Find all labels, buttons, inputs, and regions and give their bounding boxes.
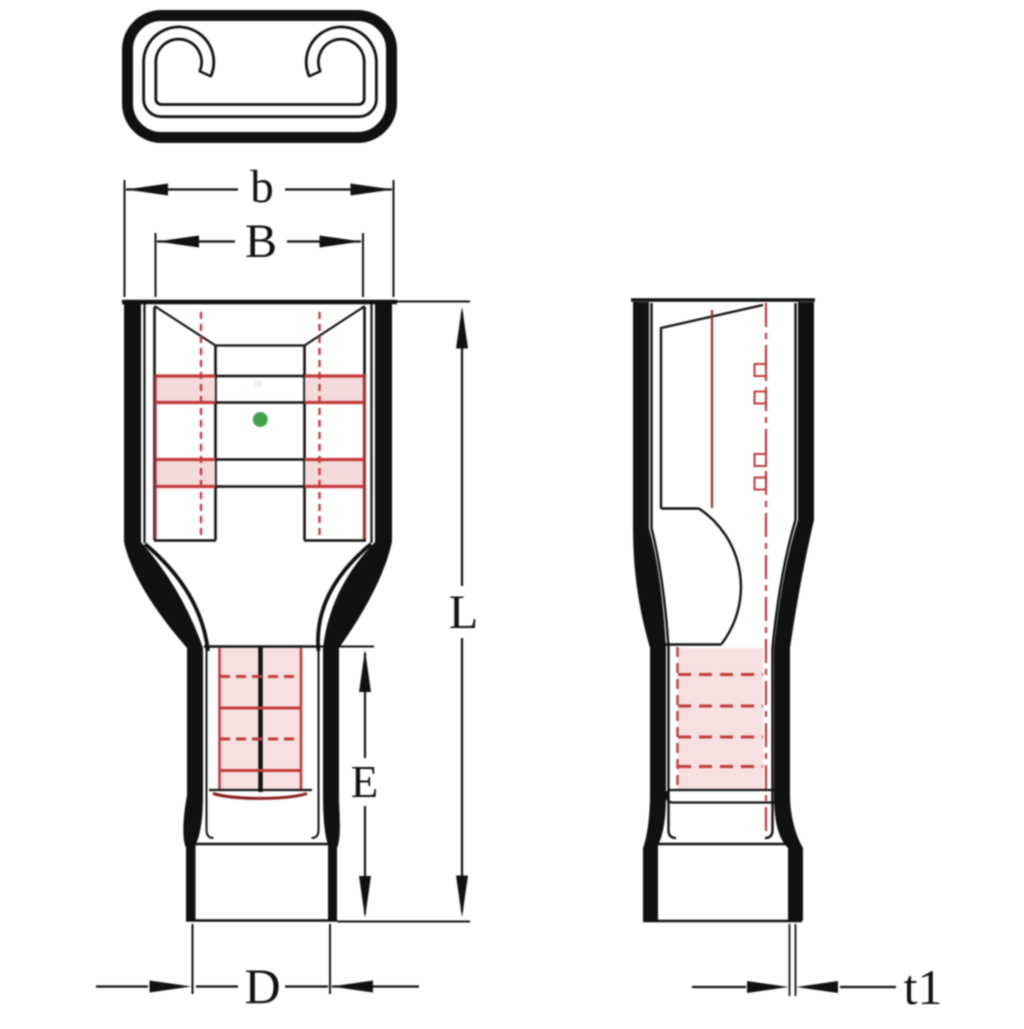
svg-text:t1: t1: [904, 959, 943, 1015]
svg-text:b: b: [250, 161, 274, 213]
svg-text:B: B: [245, 215, 277, 268]
svg-text:E: E: [351, 757, 379, 807]
svg-text:D: D: [244, 958, 280, 1014]
svg-text:L: L: [449, 586, 478, 639]
